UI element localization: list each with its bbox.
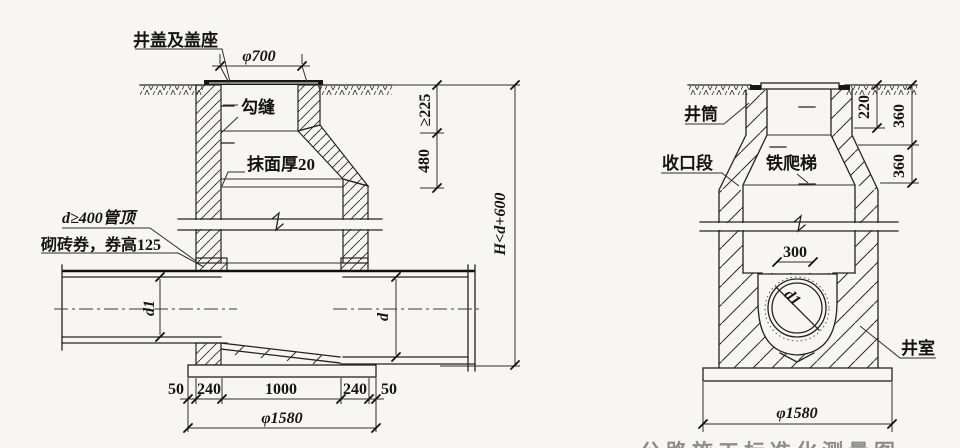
- cover-seat-right: [750, 83, 850, 90]
- dim-base-diameter-left: φ1580: [261, 410, 302, 427]
- base-slab-right: [703, 368, 892, 381]
- manhole-cover: [204, 80, 323, 85]
- base-slab: [188, 365, 376, 377]
- dim-row-1000: 1000: [265, 381, 297, 398]
- pipes: [54, 265, 482, 371]
- manhole-drawing: 井盖及盖座 φ700 勾缝 抹面厚20 d≥400管顶 砌砖券，券高125 ≥2…: [0, 0, 960, 448]
- drawing-sheet: 井盖及盖座 φ700 勾缝 抹面厚20 d≥400管顶 砌砖券，券高125 ≥2…: [0, 0, 960, 448]
- dim-cone-height: 480: [416, 149, 433, 173]
- cutoff-caption: 公路施工标准化测量图: [640, 436, 958, 448]
- dim-base-diameter-right: φ1580: [776, 405, 817, 422]
- dim-row-50-left: 50: [168, 381, 184, 398]
- right-figure-section: 井筒 收口段 铁爬梯 井室 220 360 360 300 d1 φ1580: [661, 81, 936, 432]
- dim-opening-300: 300: [783, 244, 807, 261]
- label-plaster: 抹面厚20: [247, 154, 315, 174]
- dim-row-240-left: 240: [197, 381, 221, 398]
- dim-right-pipe: d: [375, 312, 392, 321]
- dim-neck-220: 220: [856, 95, 873, 119]
- dim-cover-diameter: φ700: [242, 48, 275, 65]
- label-shaft: 井筒: [684, 104, 718, 124]
- dim-left-pipe: d1: [141, 300, 158, 316]
- label-taper: 收口段: [662, 153, 713, 173]
- label-chamber: 井室: [901, 338, 935, 358]
- dim-lower-360: 360: [891, 154, 908, 178]
- left-figure-section: 井盖及盖座 φ700 勾缝 抹面厚20 d≥400管顶 砌砖券，券高125 ≥2…: [40, 30, 520, 432]
- label-ladder: 铁爬梯: [766, 153, 817, 173]
- dim-upper-360: 360: [891, 104, 908, 128]
- dim-row-50-right: 50: [381, 381, 397, 398]
- label-arch-note: 砌砖券，券高125: [40, 235, 161, 254]
- label-cover-seat: 井盖及盖座: [133, 30, 218, 50]
- label-joint: 勾缝: [241, 97, 275, 117]
- dim-total-height: H<d+600: [492, 193, 509, 257]
- dim-row-240-right: 240: [343, 381, 367, 398]
- dim-neck-depth: ≥225: [417, 94, 434, 127]
- label-pipe-note: d≥400管顶: [62, 209, 138, 227]
